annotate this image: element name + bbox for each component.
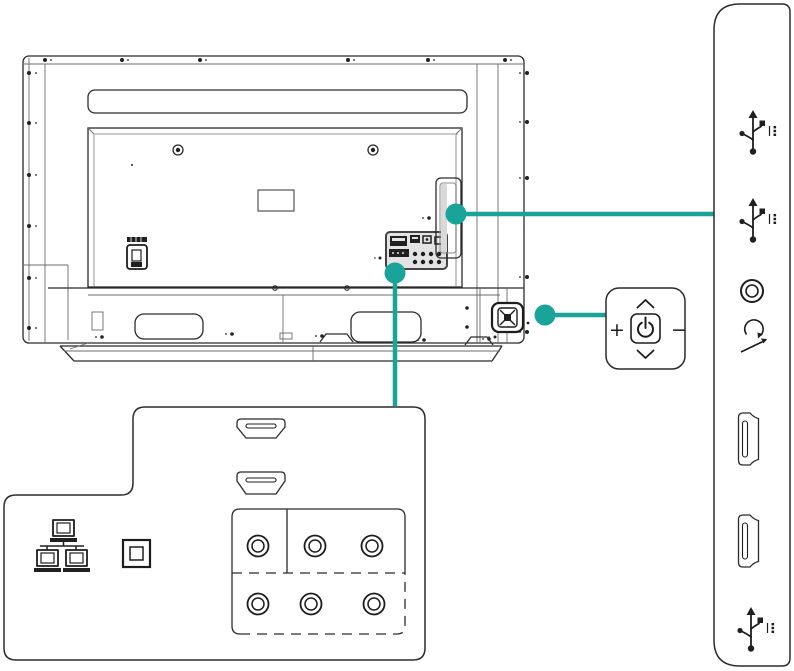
- side-port-panel: [714, 4, 790, 666]
- stand-base: [60, 334, 502, 361]
- bottom-port-panel: [4, 407, 425, 660]
- bottom-chin: [48, 288, 524, 343]
- speaker-grille-slot: [88, 90, 467, 113]
- vesa-mount-holes: [173, 145, 378, 155]
- plus-label: +: [609, 319, 625, 341]
- power-joystick-button: [488, 303, 529, 339]
- service-port: [127, 237, 147, 269]
- callout-dot-side-panel: [446, 204, 467, 225]
- minus-label: −: [671, 319, 687, 341]
- rating-label: [258, 190, 294, 211]
- tv-connections-diagram: + −: [0, 0, 794, 671]
- callout-dot-bottom-panel: [385, 263, 406, 284]
- control-buttons-callout: + −: [606, 288, 687, 369]
- callout-dot-controls: [535, 305, 556, 326]
